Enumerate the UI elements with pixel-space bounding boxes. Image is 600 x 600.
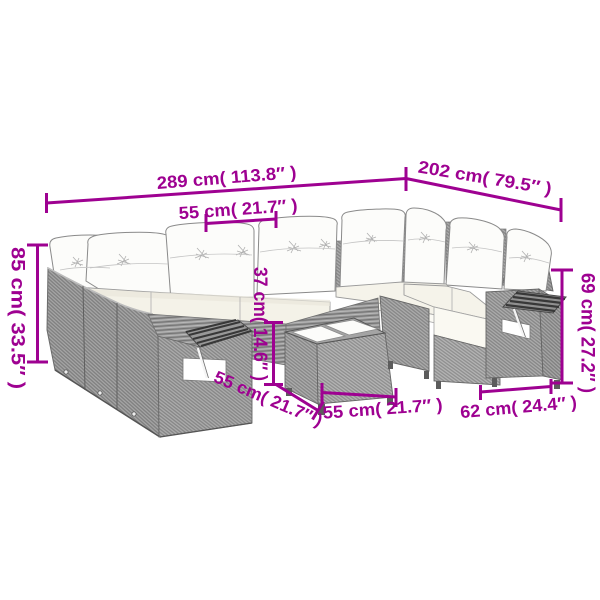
svg-text:85 cm( 33.5″ ): 85 cm( 33.5″ ) <box>7 247 29 389</box>
svg-text:37 cm( 14.6″ ): 37 cm( 14.6″ ) <box>249 267 270 381</box>
svg-text:69 cm( 27.2″ ): 69 cm( 27.2″ ) <box>577 273 599 393</box>
